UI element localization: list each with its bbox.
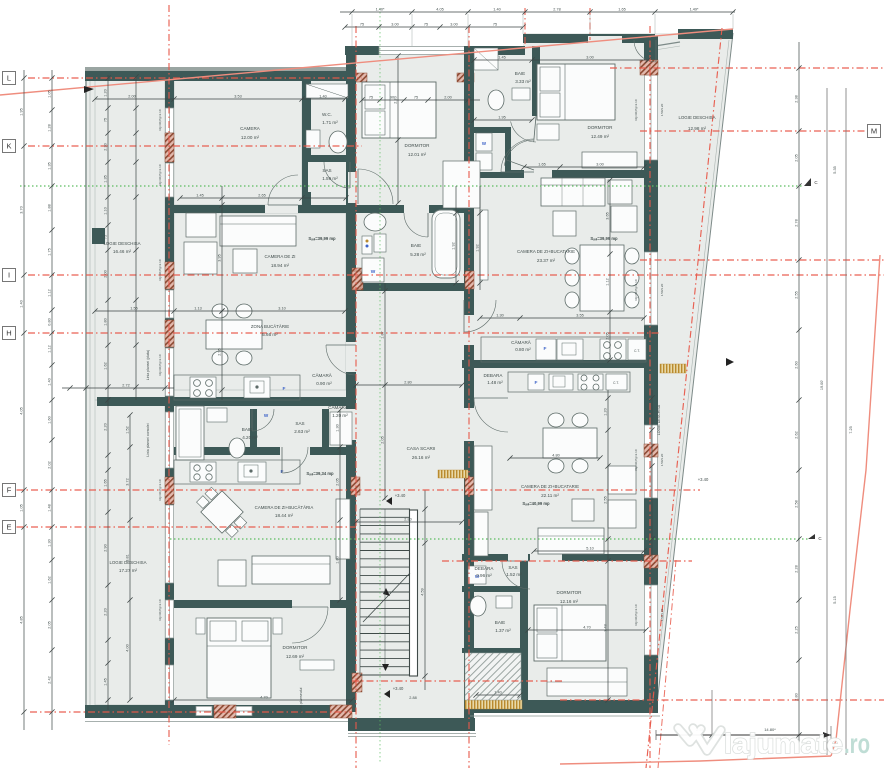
svg-text:Rg=90,Pg=2.10: Rg=90,Pg=2.10 (158, 479, 162, 500)
svg-text:SAS: SAS (508, 565, 517, 570)
svg-text:1.40: 1.40 (493, 8, 500, 12)
svg-text:DEBARA: DEBARA (484, 373, 504, 378)
svg-text:4.59: 4.59 (421, 588, 425, 595)
svg-text:26.16 m²: 26.16 m² (412, 455, 431, 460)
svg-text:0.96 m²: 0.96 m² (476, 573, 492, 578)
svg-text:1.35: 1.35 (48, 162, 52, 169)
svg-text:CAMERA DE ZI+BUCATARIE: CAMERA DE ZI+BUCATARIE (517, 249, 575, 254)
svg-text:12.49 m²: 12.49 m² (591, 134, 610, 139)
svg-text:CĂMARĂ: CĂMARĂ (328, 404, 349, 410)
svg-text:2.28: 2.28 (795, 565, 799, 572)
svg-text:1.65: 1.65 (104, 479, 108, 486)
svg-text:1.40: 1.40 (319, 95, 326, 99)
svg-text:0.80: 0.80 (48, 318, 52, 325)
svg-text:LOGIE DESCHISA: LOGIE DESCHISA (103, 241, 140, 246)
svg-text:H: H (6, 329, 11, 338)
svg-text:19.00': 19.00' (820, 380, 824, 391)
svg-text:2.20: 2.20 (104, 423, 108, 430)
svg-text:18.44 m²: 18.44 m² (275, 513, 294, 518)
svg-text:E: E (6, 523, 11, 532)
svg-text:Rg=90,Pg=2.10: Rg=90,Pg=2.10 (158, 354, 162, 375)
svg-text:1.30: 1.30 (496, 314, 503, 318)
svg-text:2.42: 2.42 (48, 676, 52, 683)
svg-text:1.45: 1.45 (196, 194, 203, 198)
svg-text:2.05: 2.05 (48, 621, 52, 628)
svg-text:2.90: 2.90 (104, 544, 108, 551)
svg-text:CĂMARĂ: CĂMARĂ (511, 339, 532, 345)
svg-text:2.25: 2.25 (795, 626, 799, 633)
svg-text:2.95: 2.95 (218, 348, 222, 355)
svg-text:12.98 m²: 12.98 m² (688, 126, 707, 131)
svg-text:1.45: 1.45 (104, 678, 108, 685)
svg-text:1.92: 1.92 (476, 244, 480, 251)
svg-text:1.12: 1.12 (48, 289, 52, 296)
svg-text:W: W (264, 413, 269, 418)
svg-text:2.55: 2.55 (795, 291, 799, 298)
svg-text:1.95: 1.95 (20, 108, 24, 115)
svg-text:4.80: 4.80 (552, 454, 559, 458)
svg-text:DORMITOR: DORMITOR (283, 645, 309, 650)
svg-text:75: 75 (104, 118, 108, 122)
svg-text:2.78: 2.78 (553, 8, 560, 12)
svg-text:1.55: 1.55 (130, 307, 137, 311)
svg-text:2.78: 2.78 (795, 219, 799, 226)
svg-text:CĂMARĂ: CĂMARĂ (312, 372, 333, 378)
svg-text:1.48: 1.48 (48, 504, 52, 511)
svg-text:BAIE: BAIE (515, 71, 525, 76)
svg-text:1.40: 1.40 (48, 378, 52, 385)
svg-text:4.00: 4.00 (126, 644, 130, 651)
svg-text:1.87: 1.87 (381, 331, 385, 338)
svg-text:23.37 m²: 23.37 m² (537, 258, 556, 263)
svg-text:1.71 m²: 1.71 m² (322, 120, 338, 125)
svg-text:3.53: 3.53 (234, 95, 241, 99)
svg-text:1.80: 1.80 (104, 318, 108, 325)
svg-text:1.20 m²: 1.20 m² (332, 413, 348, 418)
svg-text:2.55: 2.55 (604, 496, 608, 503)
svg-text:1.88: 1.88 (48, 204, 52, 211)
svg-text:16.46 m²: 16.46 m² (113, 249, 132, 254)
svg-text:2.72: 2.72 (122, 384, 129, 388)
svg-text:1.80: 1.80 (336, 556, 340, 563)
svg-text:75: 75 (360, 23, 364, 27)
svg-text:2.80: 2.80 (795, 693, 799, 700)
svg-text:1.40: 1.40 (20, 300, 24, 307)
svg-text:5.15: 5.15 (833, 596, 837, 603)
svg-text:Linia plansei (plata): Linia plansei (plata) (146, 350, 150, 380)
svg-text:0.80 m²: 0.80 m² (515, 347, 531, 352)
svg-text:1.30: 1.30 (48, 539, 52, 546)
svg-text:BAIE: BAIE (411, 243, 421, 248)
svg-text:1.92: 1.92 (452, 242, 456, 249)
svg-text:C.T.: C.T. (613, 381, 619, 385)
svg-text:.ro: .ro (844, 728, 870, 759)
svg-text:1.45: 1.45 (498, 56, 505, 60)
svg-text:CAMERA: CAMERA (240, 126, 261, 131)
svg-text:+3.40: +3.40 (393, 686, 404, 691)
svg-text:12.69 m²: 12.69 m² (286, 654, 305, 659)
svg-text:1.50/1.20: 1.50/1.20 (660, 453, 664, 466)
svg-text:L: L (7, 74, 11, 83)
svg-text:1.60: 1.60 (48, 416, 52, 423)
svg-text:1.52: 1.52 (126, 426, 130, 433)
svg-text:K: K (6, 142, 11, 151)
svg-text:75: 75 (414, 96, 418, 100)
svg-text:12.01 m²: 12.01 m² (408, 152, 427, 157)
svg-text:DORMITOR: DORMITOR (588, 125, 614, 130)
svg-text:1.52 m²: 1.52 m² (506, 572, 522, 577)
svg-text:3.10: 3.10 (278, 307, 285, 311)
svg-text:22.11 m²: 22.11 m² (541, 493, 559, 498)
svg-text:SAS: SAS (295, 421, 304, 426)
svg-text:4.85: 4.85 (20, 616, 24, 623)
svg-text:LOGIE DESCHISA: LOGIE DESCHISA (109, 560, 146, 565)
svg-text:1.62: 1.62 (48, 576, 52, 583)
svg-text:1.10: 1.10 (104, 207, 108, 214)
svg-text:2.05: 2.05 (606, 332, 610, 339)
svg-text:5.35: 5.35 (833, 166, 837, 173)
svg-text:3.00: 3.00 (450, 23, 457, 27)
svg-text:1.49*: 1.49* (690, 8, 699, 12)
svg-text:1.75: 1.75 (48, 248, 52, 255)
svg-text:Rg=90,Pg=2.10: Rg=90,Pg=2.10 (634, 279, 638, 300)
svg-text:Rg=90,Pg=2.10: Rg=90,Pg=2.10 (634, 99, 638, 120)
svg-text:2.38: 2.38 (795, 95, 799, 102)
svg-text:Rg=90,Pg=2.10: Rg=90,Pg=2.10 (158, 164, 162, 185)
svg-text:Sᵤₜᵢₗ=40,99 mp: Sᵤₜᵢₗ=40,99 mp (522, 501, 550, 506)
svg-text:3.65: 3.65 (606, 212, 610, 219)
svg-text:1.05: 1.05 (48, 90, 52, 97)
svg-text:3.00: 3.00 (391, 23, 398, 27)
svg-text:M: M (871, 127, 877, 136)
svg-text:I: I (8, 271, 10, 280)
svg-text:17.27 m²: 17.27 m² (119, 568, 138, 573)
svg-text:3.72: 3.72 (126, 478, 130, 485)
svg-text:DORMITOR: DORMITOR (557, 590, 583, 595)
svg-text:DEBARA: DEBARA (475, 566, 495, 571)
svg-text:75: 75 (424, 23, 428, 27)
svg-text:1.65: 1.65 (618, 8, 625, 12)
svg-text:BAIE: BAIE (495, 620, 505, 625)
svg-text:2.00: 2.00 (128, 95, 135, 99)
svg-text:1.05: 1.05 (20, 504, 24, 511)
svg-text:2.30: 2.30 (104, 143, 108, 150)
svg-text:1.65: 1.65 (538, 163, 545, 167)
svg-text:75: 75 (104, 235, 108, 239)
svg-text:Linia plansei consolei: Linia plansei consolei (146, 423, 150, 456)
svg-text:DORMITOR: DORMITOR (405, 143, 431, 148)
svg-text:2.80: 2.80 (404, 518, 411, 522)
svg-text:lajumate: lajumate (724, 728, 843, 759)
svg-text:1.40*: 1.40* (376, 8, 385, 12)
svg-text:Sᵤₜᵢₗ=39,34 mp: Sᵤₜᵢₗ=39,34 mp (306, 471, 334, 476)
svg-text:4.70: 4.70 (583, 626, 590, 630)
svg-text:2.00: 2.00 (444, 96, 451, 100)
svg-text:F: F (544, 346, 547, 352)
svg-text:Rg=90,Pg=2.10: Rg=90,Pg=2.10 (634, 604, 638, 625)
svg-text:1.95: 1.95 (498, 116, 505, 120)
svg-text:3.33 m²: 3.33 m² (515, 79, 531, 84)
svg-text:2.05: 2.05 (795, 154, 799, 161)
svg-text:3.95: 3.95 (218, 254, 222, 261)
svg-text:CASA SCARII: CASA SCARII (407, 446, 436, 451)
svg-text:2.05: 2.05 (381, 436, 385, 443)
svg-text:2.88: 2.88 (409, 696, 416, 700)
svg-text:LOGIE DESCHISA: LOGIE DESCHISA (657, 404, 661, 435)
svg-text:1.30: 1.30 (336, 424, 340, 431)
svg-text:5.10: 5.10 (586, 547, 593, 551)
svg-text:3.00: 3.00 (596, 163, 603, 167)
svg-text:3.43: 3.43 (604, 624, 608, 631)
svg-text:BAIE: BAIE (242, 427, 252, 432)
svg-text:F: F (535, 380, 538, 386)
svg-text:2.02: 2.02 (48, 461, 52, 468)
svg-text:1.59 m²: 1.59 m² (322, 176, 338, 181)
svg-text:CAMERA DE ZI+BUCATARIE: CAMERA DE ZI+BUCATARIE (521, 484, 579, 489)
svg-text:CAMERA DE ZI+BUCĂTĂRIA: CAMERA DE ZI+BUCĂTĂRIA (255, 505, 314, 510)
svg-text:1.13: 1.13 (194, 307, 201, 311)
svg-text:ZONA BUCĂTĂRIE: ZONA BUCĂTĂRIE (251, 324, 289, 329)
svg-text:75: 75 (493, 23, 497, 27)
svg-text:Rg=90,Pg=2.10: Rg=90,Pg=2.10 (158, 109, 162, 130)
svg-text:Rg=90,Pg=2.10: Rg=90,Pg=2.10 (158, 259, 162, 280)
svg-text:2.80: 2.80 (404, 381, 411, 385)
svg-text:LOGIE DESCHISA: LOGIE DESCHISA (678, 115, 715, 120)
svg-text:90: 90 (390, 96, 394, 100)
svg-text:18.94 m²: 18.94 m² (271, 263, 290, 268)
svg-text:4.05: 4.05 (20, 407, 24, 414)
svg-text:1.28: 1.28 (48, 124, 52, 131)
svg-text:4.20 m²: 4.20 m² (242, 435, 258, 440)
svg-text:Rg=90,Pg=2.10: Rg=90,Pg=2.10 (158, 599, 162, 620)
svg-text:1.12: 1.12 (606, 278, 610, 285)
svg-text:1.62: 1.62 (104, 362, 108, 369)
svg-text:2.63 m²: 2.63 m² (294, 429, 310, 434)
svg-text:12.16 m²: 12.16 m² (560, 599, 579, 604)
svg-text:F: F (283, 386, 286, 392)
svg-text:2.00: 2.00 (104, 270, 108, 277)
svg-text:2.20: 2.20 (104, 608, 108, 615)
svg-text:12.00 m²: 12.00 m² (241, 135, 260, 140)
svg-text:2.60: 2.60 (795, 361, 799, 368)
svg-text:2.58: 2.58 (795, 500, 799, 507)
svg-text:2.65: 2.65 (258, 194, 265, 198)
svg-text:Rg=90,Pg=2.10: Rg=90,Pg=2.10 (634, 449, 638, 470)
svg-text:C.T.: C.T. (634, 349, 640, 353)
svg-text:75: 75 (369, 96, 373, 100)
svg-text:Sᵤₜᵢₗ=39,99 mp: Sᵤₜᵢₗ=39,99 mp (590, 236, 618, 241)
svg-text:+3.40: +3.40 (698, 477, 709, 482)
svg-text:1.12: 1.12 (48, 345, 52, 352)
svg-text:1.48 m²: 1.48 m² (487, 380, 503, 385)
svg-text:5.66 m²: 5.66 m² (262, 332, 278, 337)
svg-text:Sᵤₜᵢₗ=39,99 mp: Sᵤₜᵢₗ=39,99 mp (308, 236, 336, 241)
svg-text:F: F (7, 486, 12, 495)
svg-text:4.70: 4.70 (260, 696, 267, 700)
svg-text:7.25: 7.25 (849, 426, 853, 433)
svg-text:+3.40: +3.40 (395, 493, 406, 498)
svg-text:1.50/1.20: 1.50/1.20 (660, 608, 664, 621)
svg-text:1.20: 1.20 (104, 89, 108, 96)
svg-text:1.35: 1.35 (104, 175, 108, 182)
svg-text:4.05: 4.05 (436, 8, 443, 12)
svg-text:CAMERA DE ZI: CAMERA DE ZI (265, 254, 296, 259)
svg-text:2.05: 2.05 (336, 478, 340, 485)
svg-text:3.00: 3.00 (586, 56, 593, 60)
svg-text:W.C.: W.C. (322, 112, 332, 117)
svg-text:SAS: SAS (322, 168, 331, 173)
svg-text:Linia planseului: Linia planseului (299, 687, 303, 712)
svg-text:2.62: 2.62 (795, 431, 799, 438)
svg-text:1.20: 1.20 (604, 408, 608, 415)
svg-text:1.50/1.20: 1.50/1.20 (660, 283, 664, 296)
svg-text:3.55: 3.55 (576, 314, 583, 318)
svg-text:0.90 m²: 0.90 m² (316, 381, 332, 386)
svg-text:1.40: 1.40 (494, 691, 501, 695)
svg-text:3.70: 3.70 (20, 206, 24, 213)
svg-text:1.37 m²: 1.37 m² (495, 628, 511, 633)
svg-text:5.28 m²: 5.28 m² (410, 252, 426, 257)
svg-text:W: W (371, 269, 376, 275)
svg-text:1.50/1.20: 1.50/1.20 (660, 103, 664, 116)
